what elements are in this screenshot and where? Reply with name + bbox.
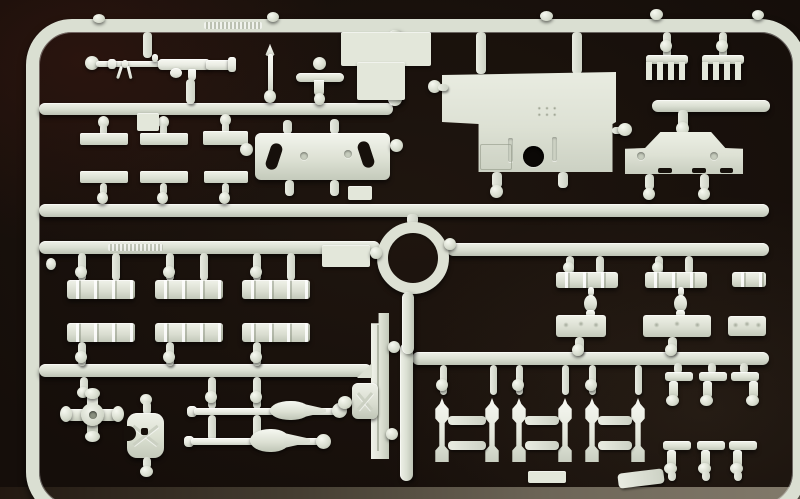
ribbed-strip — [155, 280, 223, 299]
runner-h5-right — [412, 352, 769, 365]
gate-nub — [444, 238, 456, 250]
runner-pad — [528, 471, 566, 483]
plate-rib — [552, 137, 557, 161]
gate-nub — [240, 143, 253, 156]
gate — [330, 180, 339, 196]
grouser-comb-teeth — [646, 62, 688, 80]
handle-knob — [313, 57, 326, 70]
gate — [186, 79, 195, 104]
gate-nub — [585, 379, 597, 391]
ribbed-strip — [155, 323, 223, 342]
gate-nub — [267, 12, 279, 22]
photo-of-model-kit-sprue — [0, 0, 800, 499]
runner-h2-left — [39, 103, 393, 115]
l-bracket-bar — [699, 372, 727, 381]
gate — [490, 365, 497, 395]
skirt-notch — [720, 168, 733, 173]
mg-receiver — [158, 59, 210, 70]
molding-pad — [348, 186, 372, 200]
gate — [702, 471, 710, 481]
gate-nub — [163, 351, 175, 363]
gate-nub — [97, 192, 108, 204]
hub-center-hole — [89, 411, 97, 419]
l-bracket-bar — [731, 372, 759, 381]
gate-nub — [46, 258, 56, 270]
flat-strip — [140, 171, 188, 183]
flat-strip — [204, 171, 248, 183]
dotted-strip — [556, 315, 606, 337]
gate-nub — [490, 185, 503, 198]
gate — [287, 253, 295, 281]
mg-butt — [228, 57, 236, 72]
pin-link-bar — [525, 416, 559, 425]
pin-link-bar — [448, 441, 486, 450]
buckle-hole — [141, 428, 148, 435]
skirt-notch — [692, 168, 706, 173]
l-bracket-bar — [665, 372, 693, 381]
runner-h5-left — [39, 364, 372, 377]
gate-nub — [572, 344, 584, 356]
dotted-strip — [643, 315, 711, 337]
pin-part-foot — [264, 90, 276, 103]
l-bracket-foot — [666, 395, 679, 406]
gate — [476, 32, 486, 74]
l-bracket-bar — [729, 441, 757, 450]
turret-ring — [377, 222, 449, 294]
hub-arm-cap — [112, 406, 124, 422]
mg-collar — [108, 59, 116, 69]
gate-nub — [157, 192, 168, 204]
gate — [562, 365, 569, 395]
gate — [572, 32, 582, 74]
embossed-marking — [204, 22, 262, 29]
molding-pad — [357, 62, 405, 100]
gate-nub — [140, 466, 153, 477]
runner-top-right — [652, 100, 770, 112]
gate-nub — [650, 9, 663, 20]
gate-nub — [665, 344, 677, 356]
plate-dimple — [344, 150, 352, 158]
gate-nub — [390, 139, 403, 152]
plate-dimple — [300, 152, 308, 160]
gate — [438, 84, 448, 91]
gate — [635, 365, 642, 395]
ribbed-strip — [732, 272, 766, 287]
gate-nub — [75, 351, 87, 363]
gate — [734, 471, 742, 481]
runner-h4-right — [447, 243, 769, 256]
gate — [200, 253, 208, 281]
l-bracket-foot — [746, 395, 759, 406]
gate-nub — [338, 396, 352, 409]
ribbed-strip — [242, 323, 310, 342]
ring-stem — [402, 292, 414, 354]
embossed-marking — [108, 244, 163, 251]
gate-nub — [643, 188, 655, 200]
skirt-hole — [710, 152, 718, 160]
dotted-strip — [728, 316, 766, 336]
skirt-hole — [637, 152, 645, 160]
hatch-hole — [523, 146, 544, 167]
gate-nub — [618, 123, 632, 136]
l-bracket-bar — [697, 441, 725, 450]
gate-nub — [512, 379, 524, 391]
gate-nub — [388, 341, 400, 353]
l-bracket-bar — [663, 441, 691, 450]
gate — [143, 32, 152, 58]
handle-tip — [314, 93, 325, 105]
gate-nub — [250, 391, 262, 403]
molding-pad — [137, 113, 159, 131]
pin-link-bar — [448, 416, 486, 425]
gate — [668, 471, 676, 481]
gate — [558, 172, 568, 188]
molding-pad — [341, 32, 431, 66]
gate-nub — [250, 351, 262, 363]
gate — [285, 180, 294, 196]
pin-part-shaft — [268, 54, 273, 92]
ribbed-strip — [67, 323, 135, 342]
pin-link-bar — [598, 416, 632, 425]
hub-arm-cap — [85, 431, 100, 442]
gate-nub — [436, 379, 448, 391]
gate-nub — [205, 391, 217, 403]
ribbed-strip — [556, 272, 618, 288]
ribbed-strip — [67, 280, 135, 299]
mg-drum-magazine — [170, 68, 182, 78]
molding-pad — [322, 245, 370, 267]
gate-nub — [370, 247, 382, 259]
flat-strip — [140, 133, 188, 145]
skirt-notch — [658, 168, 672, 173]
gate-nub — [163, 266, 175, 278]
hub-arm-cap — [85, 388, 100, 399]
pin-link-bar — [525, 441, 559, 450]
gate-nub — [660, 40, 672, 52]
folding-jack — [352, 383, 378, 419]
gate-nub — [316, 434, 331, 449]
gate-nub — [219, 192, 230, 204]
l-bracket-foot — [700, 395, 713, 406]
ribbed-strip — [645, 272, 707, 288]
gate-nub — [93, 14, 105, 23]
ribbed-strip — [242, 280, 310, 299]
plate-panel-line — [480, 144, 512, 170]
flat-strip — [80, 133, 128, 145]
flat-strip — [203, 131, 248, 145]
bolt-hole-grid — [536, 105, 558, 118]
grouser-comb-teeth — [702, 62, 744, 80]
gate-nub — [716, 40, 728, 52]
gate-nub — [752, 10, 764, 20]
gate-nub — [250, 266, 262, 278]
gate-nub — [75, 266, 87, 278]
flat-strip — [80, 171, 128, 183]
gate — [112, 253, 120, 281]
gate-nub — [698, 188, 710, 200]
pin-link-bar — [598, 441, 632, 450]
gate-nub — [540, 11, 553, 21]
runner-h3 — [39, 204, 769, 217]
hub-arm-cap — [60, 406, 72, 422]
mg-front-sight — [152, 54, 158, 62]
runner-v2 — [400, 343, 413, 481]
gate — [283, 120, 292, 134]
gate — [330, 119, 339, 134]
gate-nub — [386, 428, 398, 440]
